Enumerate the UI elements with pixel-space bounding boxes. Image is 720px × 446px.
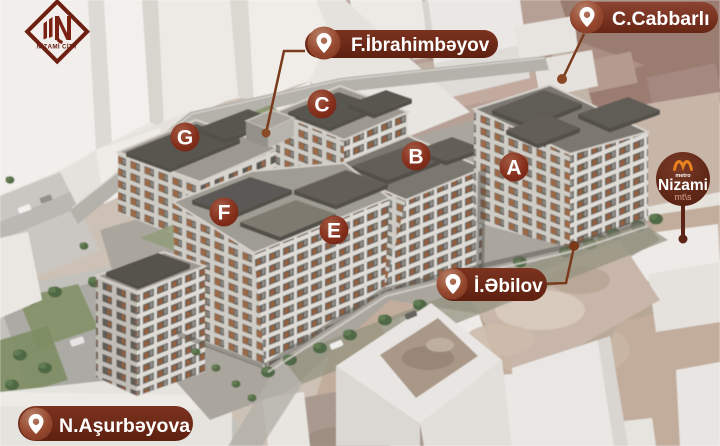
svg-text:A: A xyxy=(506,157,521,180)
svg-text:mt\s: mt\s xyxy=(675,192,692,202)
svg-text:İ.Əbilov: İ.Əbilov xyxy=(474,276,543,297)
svg-text:NİZAMİ CİTY: NİZAMİ CİTY xyxy=(36,43,78,51)
svg-text:B: B xyxy=(408,146,423,169)
svg-text:C.Cabbarlı: C.Cabbarlı xyxy=(612,8,710,30)
svg-text:N.Aşurbəyova: N.Aşurbəyova xyxy=(59,415,190,437)
svg-text:G: G xyxy=(177,127,193,150)
svg-text:F: F xyxy=(218,202,231,225)
svg-text:F.İbrahimbəyov: F.İbrahimbəyov xyxy=(351,35,490,56)
svg-text:E: E xyxy=(327,220,341,243)
svg-text:C: C xyxy=(314,94,329,117)
